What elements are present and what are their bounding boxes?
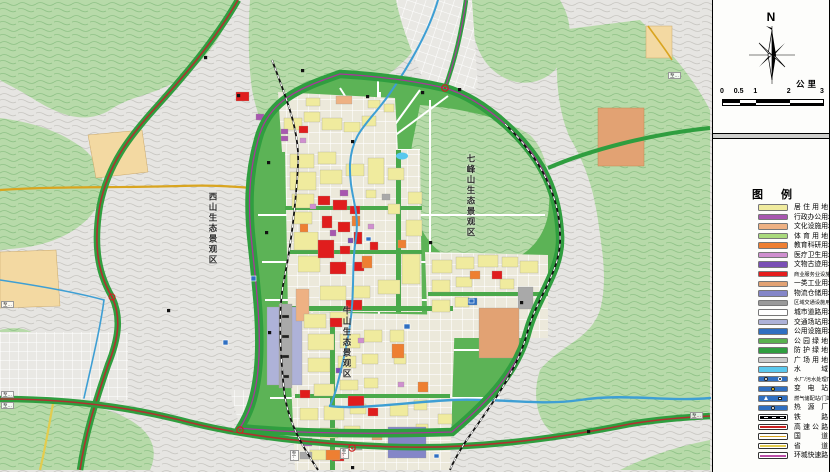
region-label-xishan: 西山生态景观区 (207, 192, 219, 266)
legend-item: 教育科研用地 (713, 241, 830, 251)
circle-white-icon (771, 406, 775, 410)
legend-item: 水厂/污水处理厂 (713, 375, 830, 385)
circle-yellow-icon (771, 387, 775, 391)
legend-item-label: 铁路 (794, 414, 828, 422)
legend-swatch (758, 252, 788, 258)
legend-item-label: 物流仓储用地 (794, 290, 828, 298)
legend-title: 图例 (752, 186, 792, 202)
legend-swatch (758, 309, 788, 315)
legend-item: 城市道路用地 (713, 308, 830, 318)
legend-item-label: 热源厂 (794, 404, 828, 412)
legend-item-label: 省道 (794, 443, 828, 451)
legend-swatch (758, 405, 788, 411)
triangle-white-icon (764, 396, 768, 400)
legend-item-label: 教育科研用地 (794, 242, 828, 250)
legend-item: 防护绿地 (713, 346, 830, 356)
legend-swatch (758, 271, 788, 277)
legend: 居住用地行政办公用地文化设施用地体育用地教育科研用地医疗卫生用地文物古迹用地商业… (713, 203, 830, 461)
legend-line-sample (760, 445, 786, 447)
legend-line-sample (760, 426, 786, 428)
scale-tick-label: 2 (787, 88, 791, 95)
legend-item-label: 文化设施用地 (794, 223, 828, 231)
legend-item: 变电站 (713, 384, 830, 394)
map-side-panel: N 公里 00.5123 图例 居住用地行政办公用地文化设施用地体育用地教育科研… (712, 0, 830, 472)
legend-swatch (758, 366, 788, 372)
legend-swatch (758, 242, 788, 248)
legend-swatch (758, 290, 788, 296)
legend-item: 广场用地 (713, 356, 830, 366)
legend-swatch (758, 328, 788, 334)
legend-item: 体育用地 (713, 232, 830, 242)
region-label-niushan: 牛山生态景观区 (341, 306, 353, 380)
scale-tick-label: 1 (753, 88, 757, 95)
legend-item-label: 文物古迹用地 (794, 261, 828, 269)
legend-swatch (758, 338, 788, 344)
legend-item-label: 公用设施用地 (794, 328, 828, 336)
legend-item: 商业服务业设施用地 (713, 270, 830, 280)
legend-item-label: 一类工业用地 (794, 280, 828, 288)
legend-swatch (758, 424, 788, 430)
legend-item-label: 交通场站用地 (794, 319, 828, 327)
scale-tick-label: 0 (720, 88, 724, 95)
legend-item: 文化设施用地 (713, 222, 830, 232)
legend-item-label: 医疗卫生用地 (794, 252, 828, 260)
legend-item: 铁路 (713, 413, 830, 423)
edge-destination-label: 至… (1, 402, 14, 409)
circle-white-icon (764, 377, 768, 381)
edge-destination-label: 至… (1, 301, 14, 308)
legend-item-label: 公园绿地 (794, 338, 828, 346)
legend-item: 区域交通设施用地 (713, 298, 830, 308)
legend-item-label: 国道 (794, 433, 828, 441)
legend-item-label: 行政办公用地 (794, 214, 828, 222)
edge-destination-label: 至… (290, 450, 299, 461)
legend-swatch (758, 223, 788, 229)
panel-divider (713, 133, 829, 139)
legend-swatch (758, 414, 788, 420)
legend-item-label: 变电站 (794, 385, 828, 393)
legend-item: 燃气储配站/门站 (713, 394, 830, 404)
legend-item: 医疗卫生用地 (713, 251, 830, 261)
legend-item-label: 燃气储配站/门站 (794, 395, 828, 403)
circle-dark-icon (778, 377, 782, 381)
legend-item-label: 防护绿地 (794, 347, 828, 355)
legend-line-sample (760, 455, 786, 457)
industrial-patch-east (598, 108, 644, 166)
north-label: N (713, 10, 829, 24)
legend-line-sample (760, 416, 786, 420)
legend-item-label: 高速公路 (794, 424, 828, 432)
scalebar-ticks: 00.5123 (722, 88, 822, 97)
legend-item: 公园绿地 (713, 337, 830, 347)
legend-item-label: 商业服务业设施用地 (794, 271, 828, 279)
legend-swatch (758, 433, 788, 439)
legend-item-label: 水厂/污水处理厂 (794, 376, 828, 384)
legend-item: 交通场站用地 (713, 318, 830, 328)
legend-line-sample (760, 436, 786, 438)
compass-rose-icon (745, 24, 799, 86)
edge-destination-label: 至… (1, 391, 14, 398)
legend-swatch (758, 319, 788, 325)
scale-tick-label: 3 (820, 88, 824, 95)
scale-tick-label: 0.5 (734, 88, 744, 95)
legend-item: 省道 (713, 442, 830, 452)
legend-swatch (758, 386, 788, 392)
legend-swatch (758, 357, 788, 363)
legend-swatch (758, 376, 788, 382)
legend-item-label: 广场用地 (794, 357, 828, 365)
legend-swatch (758, 452, 788, 458)
legend-item: 热源厂 (713, 403, 830, 413)
legend-item: 行政办公用地 (713, 213, 830, 223)
legend-swatch (758, 300, 788, 306)
legend-swatch (758, 204, 788, 210)
legend-item: 文物古迹用地 (713, 260, 830, 270)
edge-destination-label: 至… (340, 448, 349, 459)
legend-item-label: 区域交通设施用地 (794, 299, 828, 307)
legend-item: 环城快速路 (713, 451, 830, 461)
square-white-icon (778, 397, 782, 401)
legend-item-label: 环城快速路 (794, 452, 828, 460)
edge-destination-label: 至… (690, 412, 703, 419)
legend-item: 物流仓储用地 (713, 289, 830, 299)
legend-item-label: 城市道路用地 (794, 309, 828, 317)
legend-item: 居住用地 (713, 203, 830, 213)
legend-swatch (758, 281, 788, 287)
legend-swatch (758, 347, 788, 353)
region-label-qifengshan: 七峰山生态景观区 (465, 154, 477, 238)
legend-item: 国道 (713, 432, 830, 442)
legend-swatch (758, 261, 788, 267)
land-use-map-canvas (0, 0, 712, 472)
legend-item: 高速公路 (713, 423, 830, 433)
legend-item-label: 水域 (794, 366, 828, 374)
scalebar (722, 99, 824, 106)
legend-swatch (758, 443, 788, 449)
legend-swatch (758, 395, 788, 401)
legend-item-label: 居住用地 (794, 204, 828, 212)
edge-destination-label: 至… (668, 72, 681, 79)
legend-item-label: 体育用地 (794, 233, 828, 241)
legend-item: 一类工业用地 (713, 279, 830, 289)
legend-swatch (758, 214, 788, 220)
legend-swatch (758, 233, 788, 239)
legend-item: 水域 (713, 365, 830, 375)
legend-item: 公用设施用地 (713, 327, 830, 337)
planning-map-page: 西山生态景观区 七峰山生态景观区 牛山生态景观区 至… 至… 至… 至… 至… … (0, 0, 830, 472)
